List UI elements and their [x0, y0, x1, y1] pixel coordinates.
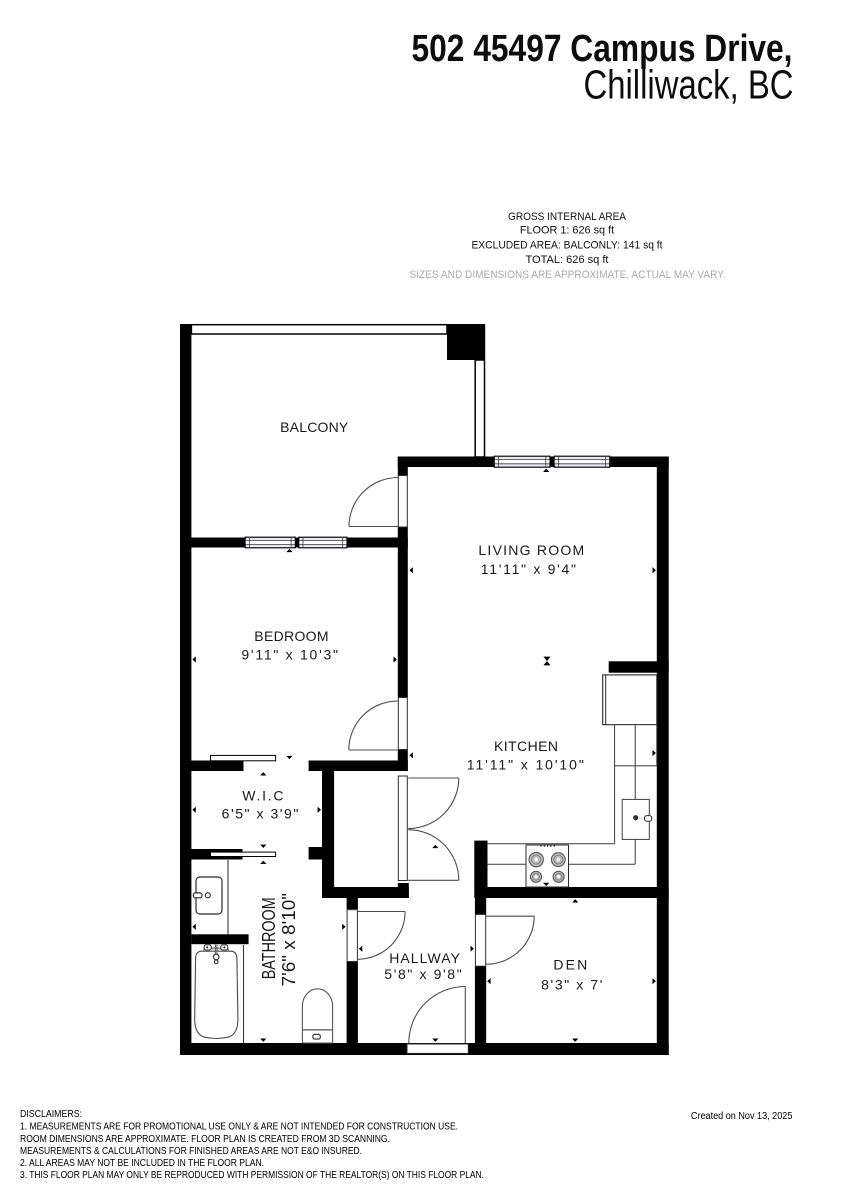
svg-text:3. THIS FLOOR PLAN MAY ONLY BE: 3. THIS FLOOR PLAN MAY ONLY BE REPRODUCE…: [20, 1170, 484, 1181]
svg-text:5'8" x 9'8": 5'8" x 9'8": [384, 966, 461, 982]
svg-text:Chilliwack, BC: Chilliwack, BC: [584, 61, 794, 107]
svg-text:FLOOR 1: 626 sq ft: FLOOR 1: 626 sq ft: [520, 225, 615, 237]
svg-text:DISCLAIMERS:: DISCLAIMERS:: [20, 1109, 82, 1120]
svg-text:11'11" x 9'4": 11'11" x 9'4": [481, 561, 576, 577]
svg-text:HALLWAY: HALLWAY: [389, 950, 460, 966]
svg-text:GROSS INTERNAL AREA: GROSS INTERNAL AREA: [508, 211, 626, 223]
svg-text:8'3" x 7': 8'3" x 7': [541, 977, 602, 993]
svg-text:9'11" x 10'3": 9'11" x 10'3": [241, 647, 338, 663]
svg-text:1. MEASUREMENTS ARE FOR PROMOT: 1. MEASUREMENTS ARE FOR PROMOTIONAL USE …: [20, 1122, 458, 1133]
svg-text:BATHROOM: BATHROOM: [259, 897, 279, 979]
svg-text:LIVING ROOM: LIVING ROOM: [478, 542, 584, 558]
svg-text:KITCHEN: KITCHEN: [494, 738, 558, 754]
svg-text:SIZES AND DIMENSIONS ARE APPRO: SIZES AND DIMENSIONS ARE APPROXIMATE, AC…: [410, 269, 726, 281]
svg-text:6'5" x 3'9": 6'5" x 3'9": [222, 806, 299, 822]
svg-text:TOTAL: 626 sq ft: TOTAL: 626 sq ft: [526, 254, 610, 266]
svg-text:ROOM DIMENSIONS ARE APPROXIMAT: ROOM DIMENSIONS ARE APPROXIMATE. FLOOR P…: [20, 1134, 390, 1145]
svg-text:BEDROOM: BEDROOM: [254, 628, 328, 644]
svg-text:11'11" x 10'10": 11'11" x 10'10": [467, 757, 584, 773]
svg-text:7'6" x 8'10": 7'6" x 8'10": [279, 893, 299, 987]
svg-text:EXCLUDED AREA: BALCONLY: 141 s: EXCLUDED AREA: BALCONLY: 141 sq ft: [471, 240, 663, 252]
svg-text:2. ALL AREAS MAY NOT BE INCLUD: 2. ALL AREAS MAY NOT BE INCLUDED IN THE …: [20, 1158, 264, 1169]
svg-text:MEASUREMENTS & CALCULATIONS FO: MEASUREMENTS & CALCULATIONS FOR FINISHED…: [20, 1146, 362, 1157]
svg-text:Created on Nov 13, 2025: Created on Nov 13, 2025: [691, 1111, 793, 1122]
svg-text:BALCONY: BALCONY: [280, 419, 349, 435]
svg-text:W.I.C: W.I.C: [242, 788, 283, 804]
svg-text:DEN: DEN: [553, 957, 587, 973]
